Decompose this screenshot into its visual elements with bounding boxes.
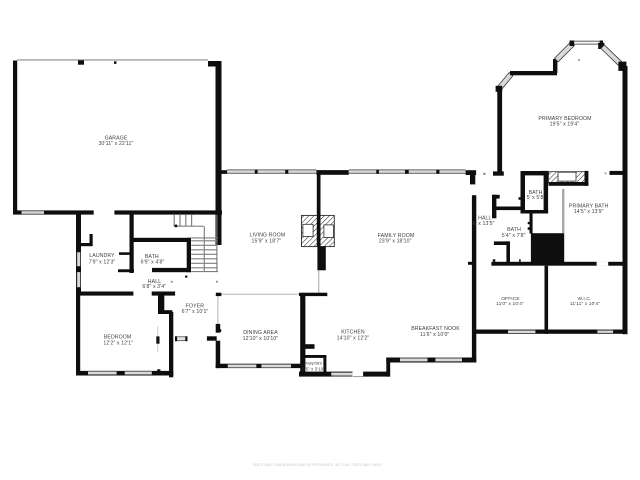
svg-text:30'11" x 22'11": 30'11" x 22'11" [99, 141, 134, 147]
svg-text:14'5" x 13'9": 14'5" x 13'9" [574, 209, 604, 215]
svg-text:11'6" x 10'0": 11'6" x 10'0" [420, 332, 449, 338]
svg-text:SIZES AND DIMENSIONS ARE APPRO: SIZES AND DIMENSIONS ARE APPROXIMATE, AC… [252, 463, 382, 467]
svg-text:W.I.C.: W.I.C. [578, 296, 592, 302]
svg-text:11'0" x 10'4": 11'0" x 10'4" [496, 301, 524, 307]
svg-text:15'9" x 18'7": 15'9" x 18'7" [252, 238, 282, 244]
svg-text:6'7" x 10'1": 6'7" x 10'1" [182, 309, 209, 315]
svg-text:11'11" x 10'4": 11'11" x 10'4" [570, 301, 600, 307]
svg-text:19'5" x 19'4": 19'5" x 19'4" [550, 122, 580, 128]
svg-text:OFFICE: OFFICE [501, 296, 520, 302]
svg-text:PANTRY: PANTRY [305, 361, 323, 366]
svg-text:6' x 13'5": 6' x 13'5" [473, 221, 495, 227]
svg-text:LAUNDRY: LAUNDRY [89, 253, 115, 259]
svg-text:14'10" x 12'2": 14'10" x 12'2" [337, 335, 370, 341]
svg-text:23'9" x 18'10": 23'9" x 18'10" [379, 238, 412, 244]
svg-text:12'10" x 10'10": 12'10" x 10'10" [243, 336, 279, 342]
svg-text:BREAKFAST NOOK: BREAKFAST NOOK [411, 326, 460, 332]
svg-text:12'2" x 12'1": 12'2" x 12'1" [103, 341, 133, 347]
svg-text:7'9" x 12'3": 7'9" x 12'3" [89, 260, 116, 266]
svg-text:5' x 5'8": 5' x 5'8" [527, 195, 546, 201]
svg-text:BEDROOM: BEDROOM [104, 334, 132, 340]
svg-text:5'4" x 7'8": 5'4" x 7'8" [502, 233, 526, 239]
svg-text:6'8" x 3'4": 6'8" x 3'4" [142, 284, 166, 290]
svg-text:BATH: BATH [507, 227, 521, 233]
svg-text:5'5" x 3'10": 5'5" x 3'10" [302, 367, 325, 372]
svg-text:6'9" x 4'8": 6'9" x 4'8" [141, 259, 165, 265]
